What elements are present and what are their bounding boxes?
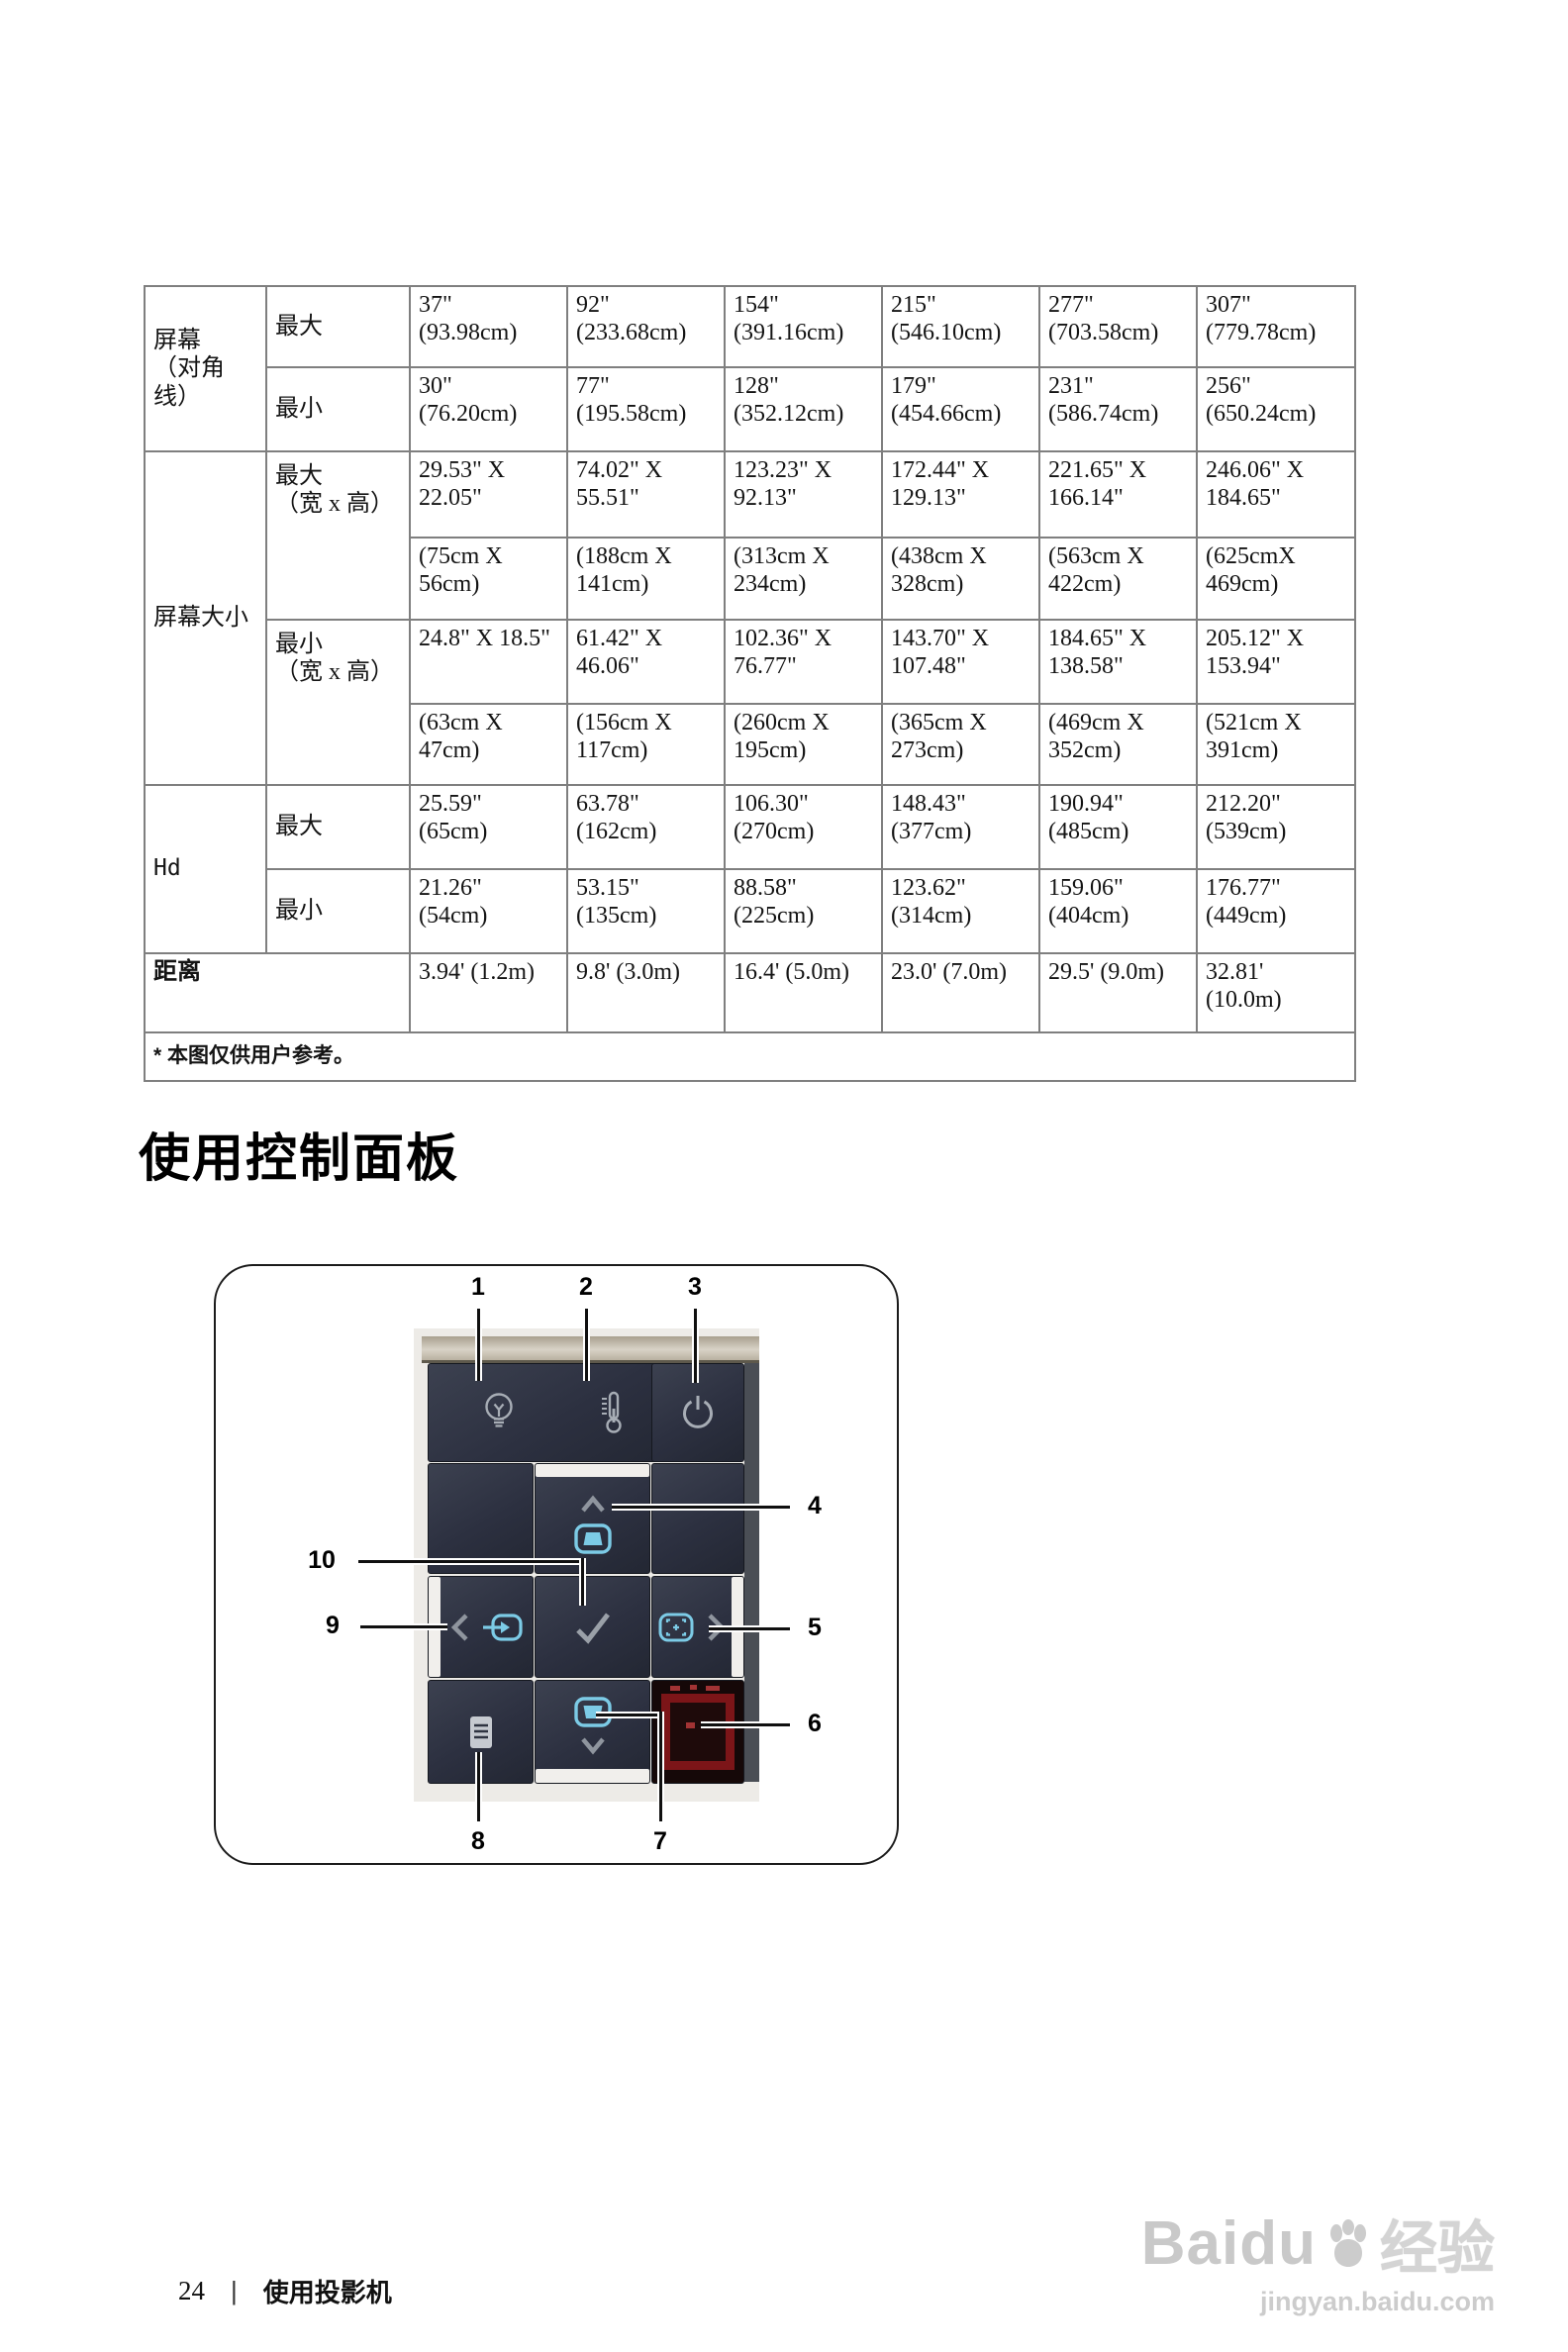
table-cell: 190.94" (485cm) [1039,785,1197,869]
table-cell: (260cm X 195cm) [725,704,882,785]
table-cell: 307" (779.78cm) [1197,286,1355,367]
table-footnote: * 本图仅供用户参考。 [145,1032,1355,1081]
table-cell: 246.06" X 184.65" [1197,451,1355,538]
sub-label: 最大 [266,286,410,367]
chevron-left-icon [448,1611,472,1644]
table-cell: 92" (233.68cm) [567,286,725,367]
table-cell: 143.70" X 107.48" [882,620,1039,704]
enter-button [535,1576,650,1678]
ir-receiver-window [651,1680,744,1784]
table-cell: 172.44" X 129.13" [882,451,1039,538]
watermark-suffix: 经验 [1380,2202,1495,2285]
footer-title: 使用投影机 [263,2273,392,2309]
table-cell: 53.15" (135cm) [567,869,725,953]
callout-9: 9 [313,1612,352,1640]
table-cell: 21.26" (54cm) [410,869,567,953]
chassis-strip [744,1363,759,1782]
sub-label: 最大 [266,785,410,869]
callout-6: 6 [798,1710,832,1738]
table-cell: (438cm X 328cm) [882,538,1039,620]
row-group-label: Hd [145,785,266,953]
table-cell: 256" (650.24cm) [1197,367,1355,451]
distance-row-label: 距离 [145,953,410,1032]
table-cell: 37" (93.98cm) [410,286,567,367]
chevron-down-icon [575,1734,611,1756]
ir-inner-frame [661,1694,735,1770]
table-cell: 74.02" X 55.51" [567,451,725,538]
callout-5: 5 [798,1614,832,1642]
sub-label: 最小 （宽 x 高） [266,620,410,785]
table-cell: 159.06" (404cm) [1039,869,1197,953]
baidu-watermark: Baidu 经验 jingyan.baidu.com [1141,2202,1495,2317]
table-cell: 61.42" X 46.06" [567,620,725,704]
table-cell: 23.0' (7.0m) [882,953,1039,1032]
page-number: 24 [178,2276,205,2306]
table-cell: 215" (546.10cm) [882,286,1039,367]
table-cell: 77" (195.58cm) [567,367,725,451]
callout-1: 1 [463,1273,493,1302]
thermometer-icon [590,1389,630,1436]
table-cell: 231" (586.74cm) [1039,367,1197,451]
table-cell: 3.94' (1.2m) [410,953,567,1032]
manual-page: { "table": { "groups": [ { "label": "屏幕\… [0,0,1568,2352]
table-cell: (313cm X 234cm) [725,538,882,620]
callout-3: 3 [680,1273,710,1302]
leader-line-4 [612,1504,790,1511]
leader-line-6 [701,1721,790,1728]
table-cell: 9.8' (3.0m) [567,953,725,1032]
leader-line-7a [596,1712,664,1718]
table-cell: 176.77" (449cm) [1197,869,1355,953]
table-cell: (75cm X 56cm) [410,538,567,620]
table-cell: 29.5' (9.0m) [1039,953,1197,1032]
callout-2: 2 [571,1273,601,1302]
auto-adjust-icon [658,1613,694,1642]
footer-separator: | [231,2276,238,2306]
leader-line-10b [579,1558,586,1606]
keystone-icon [574,1523,612,1554]
table-cell: 106.30" (270cm) [725,785,882,869]
table-cell: 184.65" X 138.58" [1039,620,1197,704]
table-cell: 221.65" X 166.14" [1039,451,1197,538]
baidu-paw-icon [1323,2215,1374,2271]
menu-icon [467,1715,495,1750]
table-cell: 128" (352.12cm) [725,367,882,451]
row-group-label: 屏幕 （对角线） [145,286,266,451]
table-cell: (63cm X 47cm) [410,704,567,785]
table-cell: 154" (391.16cm) [725,286,882,367]
callout-7: 7 [645,1827,675,1856]
table-cell: 16.4' (5.0m) [725,953,882,1032]
source-icon [482,1612,524,1643]
table-cell: 102.36" X 76.77" [725,620,882,704]
table-cell: (563cm X 422cm) [1039,538,1197,620]
chevron-up-icon [575,1493,611,1515]
section-heading: 使用控制面板 [139,1117,459,1191]
table-cell: 123.62" (314cm) [882,869,1039,953]
table-cell: (188cm X 141cm) [567,538,725,620]
table-cell: (625cmX 469cm) [1197,538,1355,620]
leader-line-9 [360,1623,447,1630]
table-cell: 88.58" (225cm) [725,869,882,953]
down-keystone-button [535,1680,650,1784]
table-cell: 29.53" X 22.05" [410,451,567,538]
row-group-label: 屏幕大小 [145,451,266,785]
leader-line-8 [475,1752,482,1821]
power-icon [676,1390,720,1435]
watermark-url: jingyan.baidu.com [1141,2287,1495,2317]
screen-size-spec-table: 屏幕 （对角线） 最大 37" (93.98cm) 92" (233.68cm)… [144,285,1356,1082]
sub-label: 最小 [266,869,410,953]
button-highlight [536,1464,649,1477]
table-cell: 123.23" X 92.13" [725,451,882,538]
leader-line-7b [657,1712,664,1821]
callout-10: 10 [295,1546,348,1575]
table-cell: 212.20" (539cm) [1197,785,1355,869]
table-cell: 277" (703.58cm) [1039,286,1197,367]
table-cell: (365cm X 273cm) [882,704,1039,785]
table-cell: 24.8" X 18.5" [410,620,567,704]
table-cell: (521cm X 391cm) [1197,704,1355,785]
table-cell: (156cm X 117cm) [567,704,725,785]
callout-4: 4 [798,1492,832,1520]
leader-line-5 [709,1625,790,1632]
blank-button-right [651,1463,744,1574]
leader-line-10a [358,1558,586,1565]
lamp-icon [476,1389,522,1436]
table-cell: 205.12" X 153.94" [1197,620,1355,704]
projector-body-edge [422,1336,759,1363]
lamp-temp-indicator-panel [428,1363,678,1462]
leader-line-3 [692,1309,699,1383]
leader-line-1 [475,1309,482,1381]
table-cell: 30" (76.20cm) [410,367,567,451]
watermark-brand: Baidu [1141,2208,1317,2279]
checkmark-icon [570,1609,616,1646]
leader-line-2 [583,1309,590,1381]
table-cell: 32.81' (10.0m) [1197,953,1355,1032]
callout-8: 8 [463,1827,493,1856]
sub-label: 最小 [266,367,410,451]
table-cell: 179" (454.66cm) [882,367,1039,451]
sub-label: 最大 （宽 x 高） [266,451,410,620]
table-cell: 25.59" (65cm) [410,785,567,869]
table-cell: (469cm X 352cm) [1039,704,1197,785]
button-highlight [536,1769,649,1783]
table-cell: 148.43" (377cm) [882,785,1039,869]
page-footer: 24 | 使用投影机 [178,2273,392,2309]
table-cell: 63.78" (162cm) [567,785,725,869]
control-panel-photo [414,1328,759,1802]
